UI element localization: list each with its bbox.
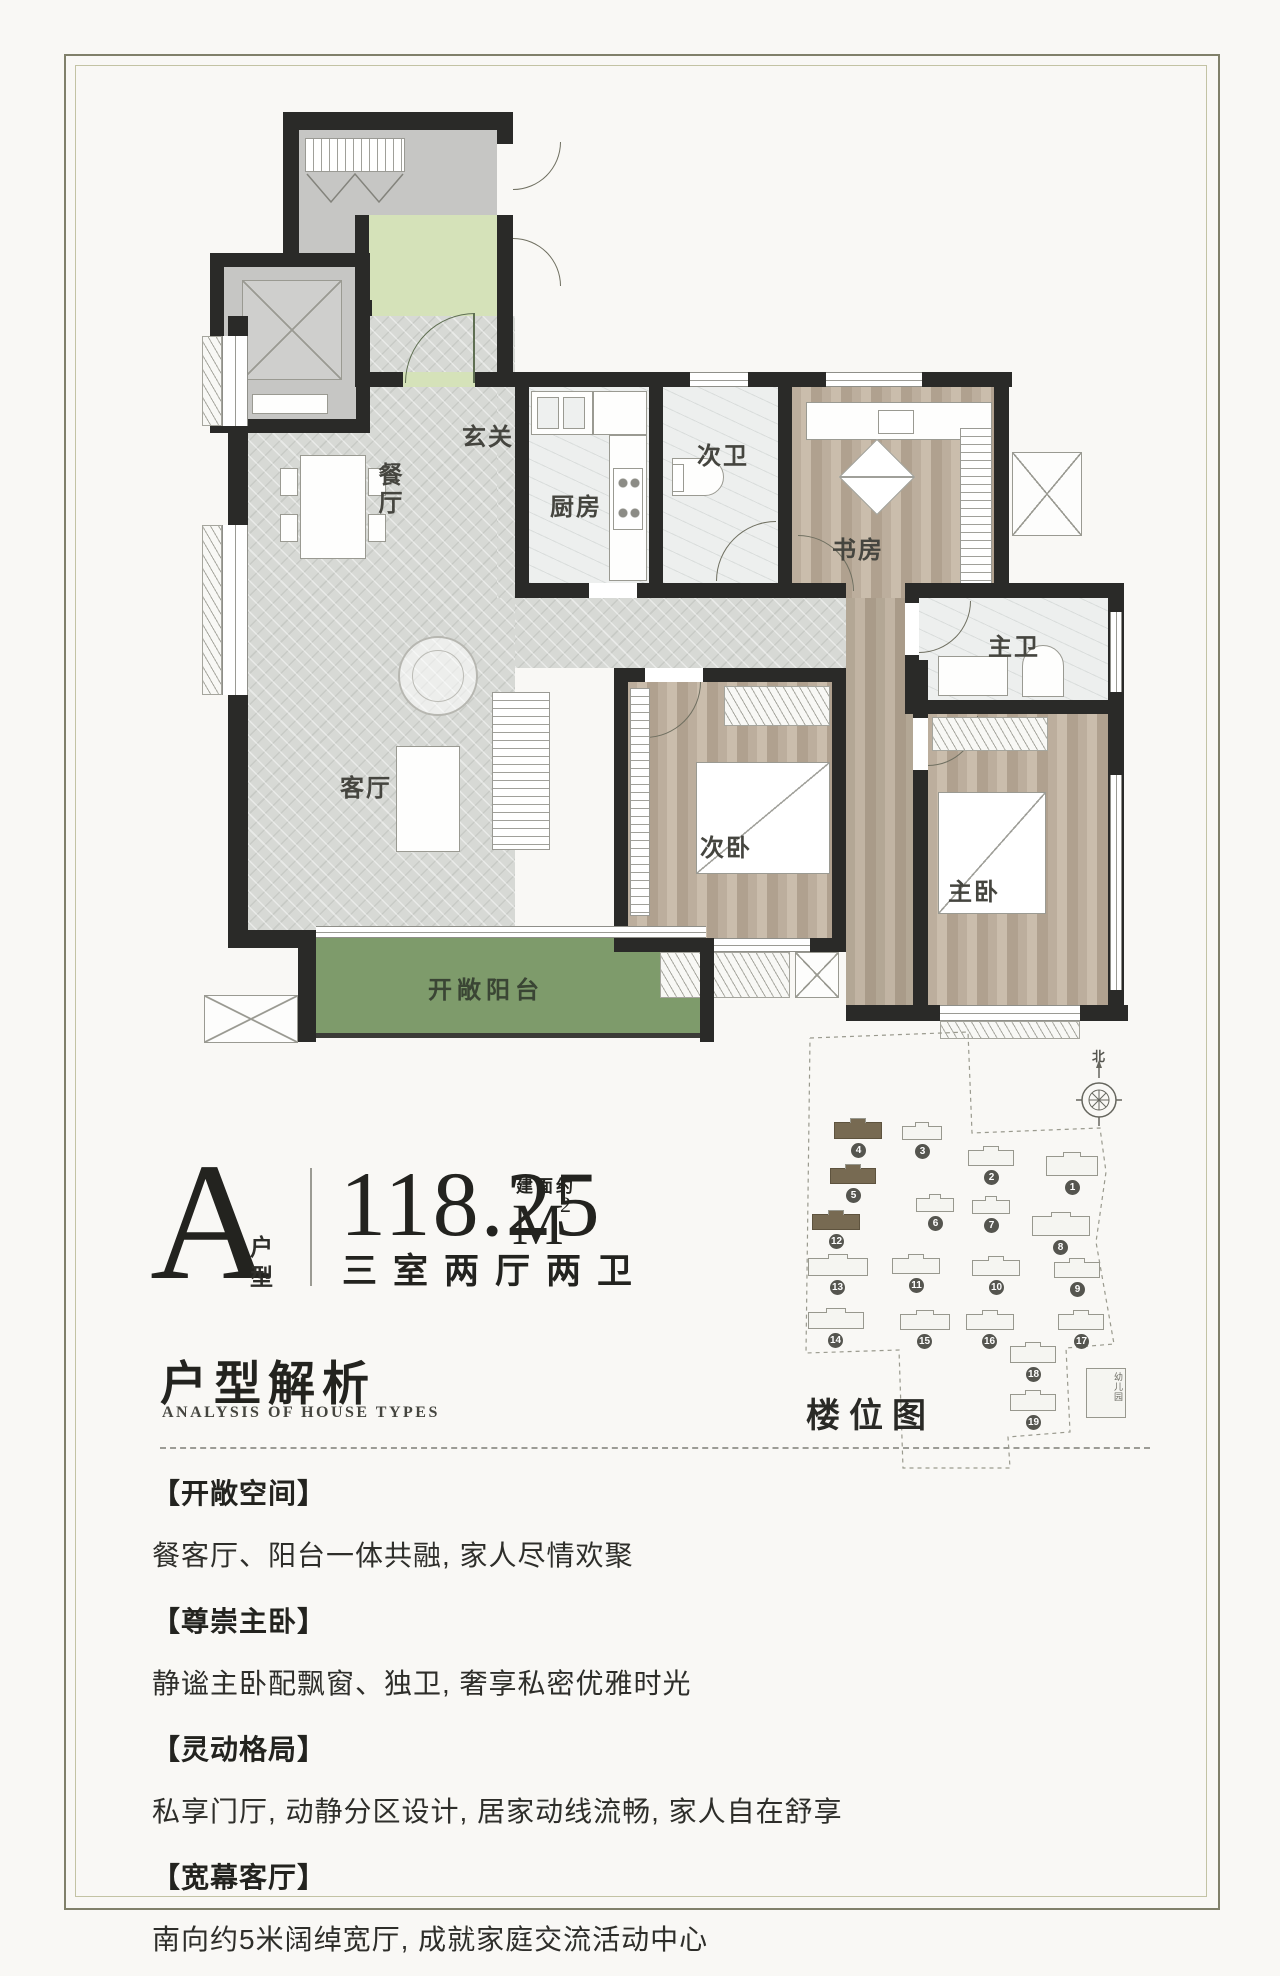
feature-body: 静谧主卧配飘窗、独卫, 奢享私密优雅时光 bbox=[152, 1662, 1092, 1702]
building-number: 3 bbox=[915, 1144, 930, 1159]
building-number: 8 bbox=[1053, 1240, 1068, 1255]
building-number: 13 bbox=[830, 1280, 845, 1295]
building-number: 16 bbox=[982, 1334, 997, 1349]
building-number: 12 bbox=[829, 1234, 844, 1249]
building-number: 10 bbox=[989, 1280, 1004, 1295]
building bbox=[972, 1200, 1010, 1214]
feature-heading: 【开敞空间】 bbox=[152, 1472, 1092, 1512]
feature-body: 餐客厅、阳台一体共融, 家人尽情欢聚 bbox=[152, 1534, 1092, 1574]
building-number: 17 bbox=[1074, 1334, 1089, 1349]
building bbox=[1058, 1314, 1104, 1330]
building-number: 1 bbox=[1065, 1180, 1080, 1195]
building-number: 14 bbox=[828, 1333, 843, 1348]
feature-heading: 【宽幕客厅】 bbox=[152, 1856, 1092, 1896]
building bbox=[900, 1314, 950, 1330]
building bbox=[1010, 1394, 1056, 1411]
building bbox=[968, 1150, 1014, 1166]
building bbox=[1010, 1346, 1056, 1363]
feature-heading: 【尊崇主卧】 bbox=[152, 1600, 1092, 1640]
kindergarten-label: 幼儿园 bbox=[1112, 1372, 1125, 1402]
building-number: 15 bbox=[917, 1334, 932, 1349]
site-plan-title: 楼位图 bbox=[806, 1388, 935, 1437]
feature-list: 【开敞空间】 餐客厅、阳台一体共融, 家人尽情欢聚 【尊崇主卧】 静谧主卧配飘窗… bbox=[152, 1472, 1092, 1976]
building-number: 6 bbox=[928, 1216, 943, 1231]
building-number: 9 bbox=[1070, 1282, 1085, 1297]
building-number: 11 bbox=[909, 1278, 924, 1293]
compass-icon bbox=[1072, 1060, 1126, 1130]
building-number: 18 bbox=[1026, 1367, 1041, 1382]
building bbox=[808, 1258, 868, 1276]
building-highlighted bbox=[834, 1122, 882, 1139]
building bbox=[966, 1314, 1014, 1330]
building bbox=[892, 1258, 940, 1274]
building bbox=[972, 1260, 1020, 1276]
feature-body: 私享门厅, 动静分区设计, 居家动线流畅, 家人自在舒享 bbox=[152, 1790, 1092, 1830]
building-number: 5 bbox=[846, 1188, 861, 1203]
feature-heading: 【灵动格局】 bbox=[152, 1728, 1092, 1768]
building bbox=[1032, 1216, 1090, 1236]
feature-body: 南向约5米阔绰宽厅, 成就家庭交流活动中心 bbox=[152, 1918, 1092, 1958]
building bbox=[808, 1312, 864, 1329]
building bbox=[916, 1198, 954, 1212]
building-number: 7 bbox=[984, 1218, 999, 1233]
building bbox=[902, 1126, 942, 1140]
poster: 玄关 餐厅 厨房 次卫 书房 主卫 客厅 次卧 主卧 开敞阳台 A 户 型 11… bbox=[0, 0, 1280, 1976]
building-highlighted bbox=[830, 1168, 876, 1184]
building-number: 2 bbox=[984, 1170, 999, 1185]
building-highlighted bbox=[812, 1214, 860, 1230]
building-number: 19 bbox=[1026, 1415, 1041, 1430]
building bbox=[1054, 1262, 1100, 1278]
building-number: 4 bbox=[851, 1143, 866, 1158]
site-plan: 北 1 2 3 4 5 6 7 8 9 bbox=[0, 0, 1280, 1500]
building bbox=[1046, 1156, 1098, 1176]
